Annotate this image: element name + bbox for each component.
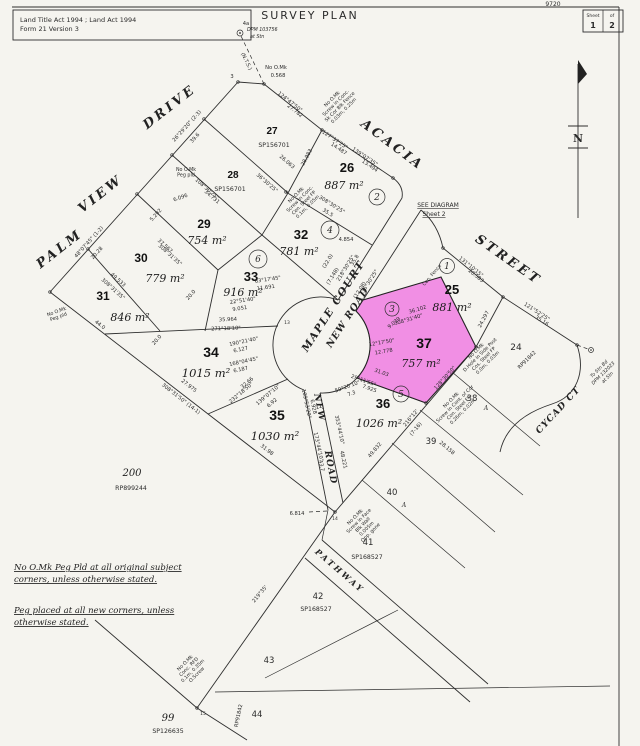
lot42-43-boundary [265,610,398,678]
bearing-label: 7.3 [347,390,357,398]
lot-37-area[interactable]: 757 m² [401,357,440,370]
tie-6814 [309,511,327,512]
lot-41-ref: SP168527 [351,554,382,561]
dpm-mark-right-dot [590,349,592,351]
bearing-label: 44.0 [93,319,106,331]
dpm-right-note: To Stn Bd DPM 132023 at Stn [586,356,620,390]
lot-28-number: 28 [227,170,239,181]
dpm-top-line2: at Stn [250,34,264,40]
bearing-label: 43.7 [317,460,325,473]
bearing-label: 28.158 [438,440,456,456]
lot-200-ref: RP899244 [115,485,147,492]
act-line: Land Title Act 1994 ; Land Act 1994 [20,16,136,24]
pathway-connector [322,510,328,540]
lot30-33-boundary [205,270,218,331]
lot-26-area: 887 m² [324,179,363,192]
bearing-label: (22.0) [321,253,334,269]
mark-note-7: No O.Mk Peg pld [46,306,69,324]
circled-2: 2 [373,193,380,203]
lot-31-number: 31 [96,289,110,303]
lot-37-number[interactable]: 37 [416,335,432,351]
see-diagram-line1: SEE DIAGRAM [417,202,459,209]
lot-25-area: 881 m² [432,301,471,314]
dpm-tie-right [577,345,588,349]
bearing-label: 353°44'10" [333,415,345,445]
mark-note-5: No O.Mk Screw in Face Blk Wall 0.005m Op… [342,504,385,547]
svg-text:No O.Mk: No O.Mk [176,167,196,173]
lot-43-number: 43 [264,656,275,666]
bearing-label: 20.0 [185,289,197,302]
north-label: N [573,132,583,145]
note-2-line-1: Peg placed at all new corners, unless [13,606,175,616]
mark-note-8: No O.Mk Peg pld [176,167,196,179]
point-15: 15 [200,711,206,717]
see-diagram-line2: Sheet 2 [422,211,445,218]
lot-39-number: 39 [426,437,437,447]
lot-44-number: 44 [252,710,263,720]
north-flag [578,60,587,84]
bearing-label: 4.854 [339,237,355,243]
lot-99-ref: SP126635 [152,728,183,735]
dpm-mark-dot [239,32,241,34]
lot-29-area: 754 m² [187,234,226,247]
lot38-39-boundary [420,410,523,495]
street-cycad: CYCAD CT [534,385,583,436]
point-3: 3 [230,74,233,80]
southwest-boundary [50,292,335,512]
road-mouth-west-arc [393,178,402,198]
circled-5: 5 [398,390,404,400]
lot-27-number: 27 [266,126,278,137]
lot-24-ref: RP91842 [517,350,538,371]
lot-32-area: 781 m² [279,245,318,258]
bearing-label: 173°44'10" [312,432,324,462]
bearing-label: 36°30'25" [255,172,279,194]
lot-27-ref: SP156701 [258,142,289,149]
bearing-label: 63°17'45" [254,275,281,285]
bearing-label: 49.832 [367,441,383,459]
survey-plan-drawing: Land Title Act 1994 ; Land Act 1994 Form… [0,0,640,746]
sheet-number: 1 [590,21,596,30]
lot34-north-boundary [105,326,278,334]
bearing-label: No O.Mk [265,65,287,71]
lot-36-area: 1026 m² [356,417,402,430]
plan-number: 9720 [545,1,560,8]
pathway-northwest-side [322,540,488,684]
point-13: 13 [284,320,290,326]
lot-32-number: 32 [294,227,308,242]
bearing-label: 0.568 [271,73,286,79]
lot-35-area: 1030 m² [251,429,300,443]
bearing-label: 9.051 [232,305,248,313]
pathway-southeast-side [305,558,470,702]
bearing-label: 28.983 [300,148,314,167]
note-1-line-2: corners, unless otherwise stated. [14,575,157,585]
form-line: Form 21 Version 3 [20,25,79,33]
circled-3: 3 [389,305,395,315]
dpm-top-line1: DPM 103756 [247,27,278,33]
lot-25-number: 25 [445,282,459,297]
sheet-label: Sheet [586,13,599,19]
bearing-label: 11.691 [256,284,275,292]
bearing-label: 20.0 [151,334,163,347]
lot-30-number: 30 [134,251,148,265]
lot-42-number: 42 [313,592,324,602]
lot-99-number: 99 [162,713,175,724]
frontage-link [238,82,264,84]
sheet-of-label: of [610,13,615,19]
mark-note-2: No O.Mk Screw in Conc. Cen. Steel FP 0.1… [282,181,323,222]
bearing-label: 48.221 [338,450,348,469]
bearing-label: 35.964 [219,317,238,324]
lot-200-number: 200 [121,468,142,479]
bearing-label: 20.28 [90,246,104,261]
lot-34-number: 34 [203,344,219,360]
point-4a-label: 4a [243,21,249,27]
bearing-label: 26.063 [278,154,296,170]
lot43-44-boundary [215,686,610,692]
lot-38-symbol: A [483,405,489,412]
circled-4: 4 [326,226,333,236]
circled-6: 6 [255,255,261,265]
lot-35-number: 35 [269,407,285,423]
lot-29-number: 29 [197,217,211,231]
lot-28-ref: SP156701 [214,186,245,193]
lot-40-number: 40 [387,488,398,498]
mark-note-1: No O.Mk Screw in Conc. Sk Cor Blk Fence … [316,83,360,127]
svg-text:Peg pld: Peg pld [177,173,195,179]
lot-24-number: 24 [510,343,522,353]
lot-34-area: 1015 m² [182,366,231,380]
lot-40-symbol: A [401,502,407,509]
bearing-label: (7-16) [409,421,424,437]
page-title: SURVEY PLAN [261,9,359,22]
bearing-label: 24.297 [477,310,491,329]
street-view: VIEW [75,172,126,216]
bearing-label: 219°35' [251,585,269,605]
circled-1: 1 [444,262,450,272]
north-arrow-icon: N [568,60,588,218]
note-1-line-1: No O.Mk Peg Pld at all original subject [13,563,182,573]
nts-label: (N.T.S.) [239,52,253,71]
survey-plan-page: Land Title Act 1994 ; Land Act 1994 Form… [0,0,640,746]
bearing-label: 271°18'10" [211,325,241,332]
lot-26-number: 26 [340,160,354,175]
lot29-33-32-back-line [218,193,288,270]
lot-36-number: 36 [376,396,390,411]
mark-note-6: No O.Mk Conc. RFD 0.1m, 0.35m O.Screw [172,650,210,688]
bearing-label: 27.975 [180,378,198,394]
bearing-label: 6.814 [290,511,306,517]
lot-42-ref: SP168527 [300,606,331,613]
sheet-total: 2 [609,21,615,30]
bearing-label: 6.096 [173,193,189,204]
lot-30-area: 779 m² [145,272,184,285]
point-14: 14 [332,516,338,522]
lot-31-area: 846 m² [110,311,149,324]
lot-44-ref: RP91842 [234,704,245,728]
bearing-label: 5.292 [149,208,163,223]
note-2-line-2: otherwise stated. [14,618,89,628]
